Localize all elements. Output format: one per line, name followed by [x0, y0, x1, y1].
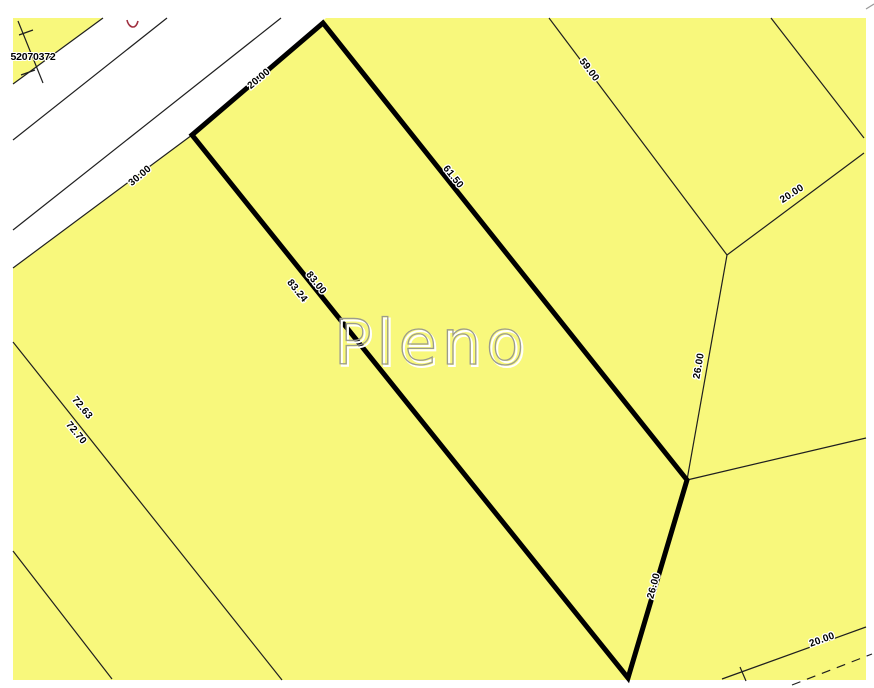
watermark-text: Pleno [334, 306, 529, 379]
parcel-id-label: 52070372 [10, 51, 55, 63]
plat-map: Pleno Pleno 52070372 20.00 30.00 61.50 5… [0, 0, 874, 688]
plat-map-screenshot: Pleno Pleno 52070372 20.00 30.00 61.50 5… [0, 0, 874, 688]
